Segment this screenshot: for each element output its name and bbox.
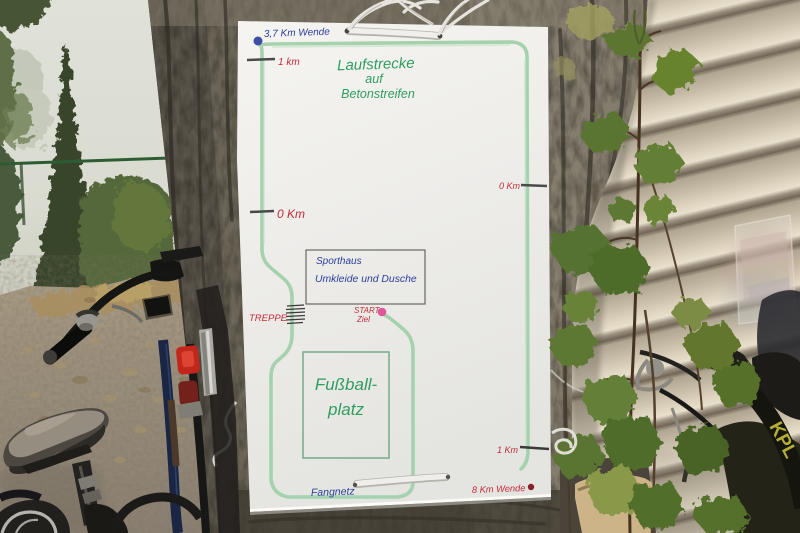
svg-text:0 Km: 0 Km <box>277 207 305 221</box>
svg-text:START: START <box>354 306 381 315</box>
svg-text:0 Km: 0 Km <box>499 181 521 191</box>
svg-text:Betonstreifen: Betonstreifen <box>341 87 415 101</box>
svg-text:Sporthaus: Sporthaus <box>316 256 362 267</box>
svg-text:auf: auf <box>365 72 384 86</box>
svg-text:Umkleide und Dusche: Umkleide und Dusche <box>315 274 417 285</box>
svg-text:8 Km Wende: 8 Km Wende <box>472 483 526 495</box>
svg-text:platz: platz <box>327 400 364 419</box>
svg-text:Ziel: Ziel <box>356 315 370 324</box>
svg-text:1 Km: 1 Km <box>497 445 519 455</box>
svg-text:3,7 Km Wende: 3,7 Km Wende <box>264 27 331 40</box>
svg-text:TREPPE: TREPPE <box>249 313 288 324</box>
svg-text:1 km: 1 km <box>278 57 300 68</box>
svg-text:Fangnetz: Fangnetz <box>311 485 356 499</box>
svg-text:Fußball-: Fußball- <box>315 375 378 394</box>
